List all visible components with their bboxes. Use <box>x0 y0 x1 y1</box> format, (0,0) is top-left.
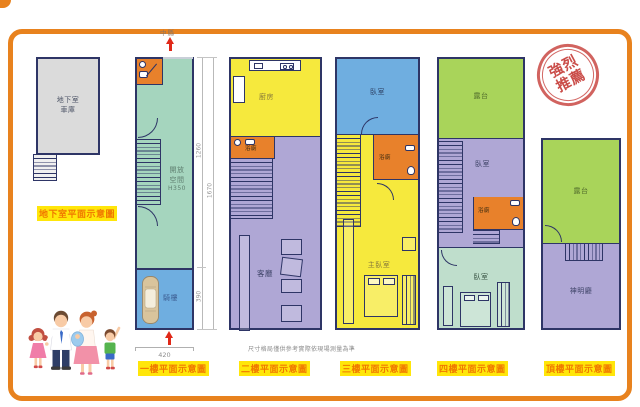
basement-plan: 地下室 車庫 <box>36 57 100 155</box>
kitchen-sink-icon <box>254 63 263 69</box>
dim-1670: 1670 <box>207 176 214 206</box>
stove-icon <box>280 63 294 70</box>
nightstand <box>402 237 416 251</box>
sink-icon <box>139 61 146 68</box>
sink-icon <box>510 200 520 206</box>
floor2-plan-title: 二樓平面示意圖 <box>239 361 310 376</box>
floor4-bedroom-mid-label: 臥室 <box>475 159 490 169</box>
family-illustration <box>26 288 126 386</box>
floor1-openspace-label: 開放 空間 H350 <box>161 165 193 194</box>
roof-terrace: 露台 <box>543 140 619 244</box>
floor1-plan-title: 一樓平面示意圖 <box>138 361 209 376</box>
floor3-stairs <box>337 135 361 227</box>
corner-accent-shape <box>0 0 11 8</box>
wardrobe <box>497 282 510 327</box>
roof-shrine-label: 神明廳 <box>543 286 619 296</box>
dim-tick <box>197 57 217 58</box>
floor2-kitchen-label: 廚房 <box>259 92 274 102</box>
floor1-arcade-label: 騎樓 <box>163 293 178 303</box>
coffee-table <box>281 279 302 293</box>
floor1-arcade: 騎樓 <box>137 268 192 328</box>
floor2-stairs <box>231 159 273 219</box>
floor4-bath-label: 浴廁 <box>478 208 490 216</box>
floor1-entrance-opening <box>163 57 193 59</box>
kitchen-counter <box>249 60 301 71</box>
sink-icon <box>405 145 415 151</box>
basement-garage-label: 地下室 車庫 <box>38 95 98 115</box>
floor3-plan-title: 三樓平面示意圖 <box>340 361 411 376</box>
bath-door-line <box>146 64 157 77</box>
floorplan-flyer: 中縣 強烈 推薦 地下室 車庫 地下室平面示意圖 開放 空間 <box>0 0 640 407</box>
roof-terrace-label: 露台 <box>543 186 619 196</box>
floor2-kitchen: 廚房 <box>231 59 320 137</box>
floor4-plan: 露台 臥室 浴廁 臥室 <box>437 57 525 330</box>
floor4-plan-title: 四樓平面示意圖 <box>437 361 508 376</box>
floor1-stairs <box>137 139 161 205</box>
floor3-plan: 臥室 浴廁 主臥室 <box>335 57 420 330</box>
disclaimer-text: 尺寸格局僅供參考實際依現場測量為準 <box>248 344 355 353</box>
bed <box>460 292 491 327</box>
entrance-arrow-icon <box>165 331 173 338</box>
floor2-bathroom: 浴廁 <box>231 137 275 159</box>
cabinet <box>239 235 250 331</box>
floor3-bathroom: 浴廁 <box>373 135 418 180</box>
floor3-bath-label: 浴廁 <box>379 155 391 163</box>
cabinet <box>443 286 453 326</box>
dim-420: 420 <box>135 351 194 359</box>
floor4-landing-stairs <box>473 230 500 244</box>
toilet-icon <box>512 217 520 226</box>
sofa-seat <box>281 239 302 255</box>
door-arc <box>138 206 158 226</box>
floor3-bedroom-label: 臥室 <box>337 87 418 97</box>
floor2-bath-label: 浴廁 <box>245 146 257 154</box>
floor4-bathroom: 浴廁 <box>473 197 523 230</box>
north-arrow-icon <box>166 37 174 44</box>
floor4-terrace-label: 露台 <box>439 91 523 101</box>
door-arc <box>377 183 394 200</box>
floor3-bedroom: 臥室 <box>337 59 418 135</box>
floor3-master-label: 主臥室 <box>359 260 399 270</box>
fridge-icon <box>233 76 245 103</box>
floor4-terrace: 露台 <box>439 59 523 139</box>
floor2-living-label: 客廳 <box>257 269 273 280</box>
roof-plan: 露台 神明廳 <box>541 138 621 330</box>
car-icon <box>141 275 160 325</box>
floor1-plan: 開放 空間 H350 騎樓 <box>135 57 194 330</box>
sofa-seat <box>281 305 302 322</box>
street-direction-label: 中縣 <box>160 27 175 37</box>
cabinet <box>343 219 354 324</box>
roof-plan-title: 頂樓平面示意圖 <box>544 361 615 376</box>
dim-390: 390 <box>196 282 203 312</box>
floor4-bedroom-low-label: 臥室 <box>439 272 523 282</box>
wardrobe <box>402 275 416 325</box>
basement-stairs <box>33 154 57 181</box>
floor4-stairs <box>439 141 463 233</box>
sink-icon <box>234 139 241 146</box>
door-arc <box>545 225 562 242</box>
door-arc <box>361 117 378 134</box>
toilet-icon <box>245 139 255 145</box>
door-arc <box>441 250 457 266</box>
dim-tick <box>197 267 206 268</box>
bed <box>364 275 398 317</box>
floor2-plan: 廚房 浴廁 客廳 <box>229 57 322 330</box>
dim-tick <box>197 329 217 330</box>
dim-1260: 1260 <box>196 136 203 166</box>
floor1-bathroom <box>137 59 163 85</box>
door-arc <box>138 118 158 138</box>
basement-plan-title: 地下室平面示意圖 <box>37 206 117 221</box>
toilet-icon <box>407 166 415 175</box>
floor4-bedroom-low: 臥室 <box>439 247 523 328</box>
sofa-seat <box>280 257 303 277</box>
roof-stairs <box>565 244 603 261</box>
